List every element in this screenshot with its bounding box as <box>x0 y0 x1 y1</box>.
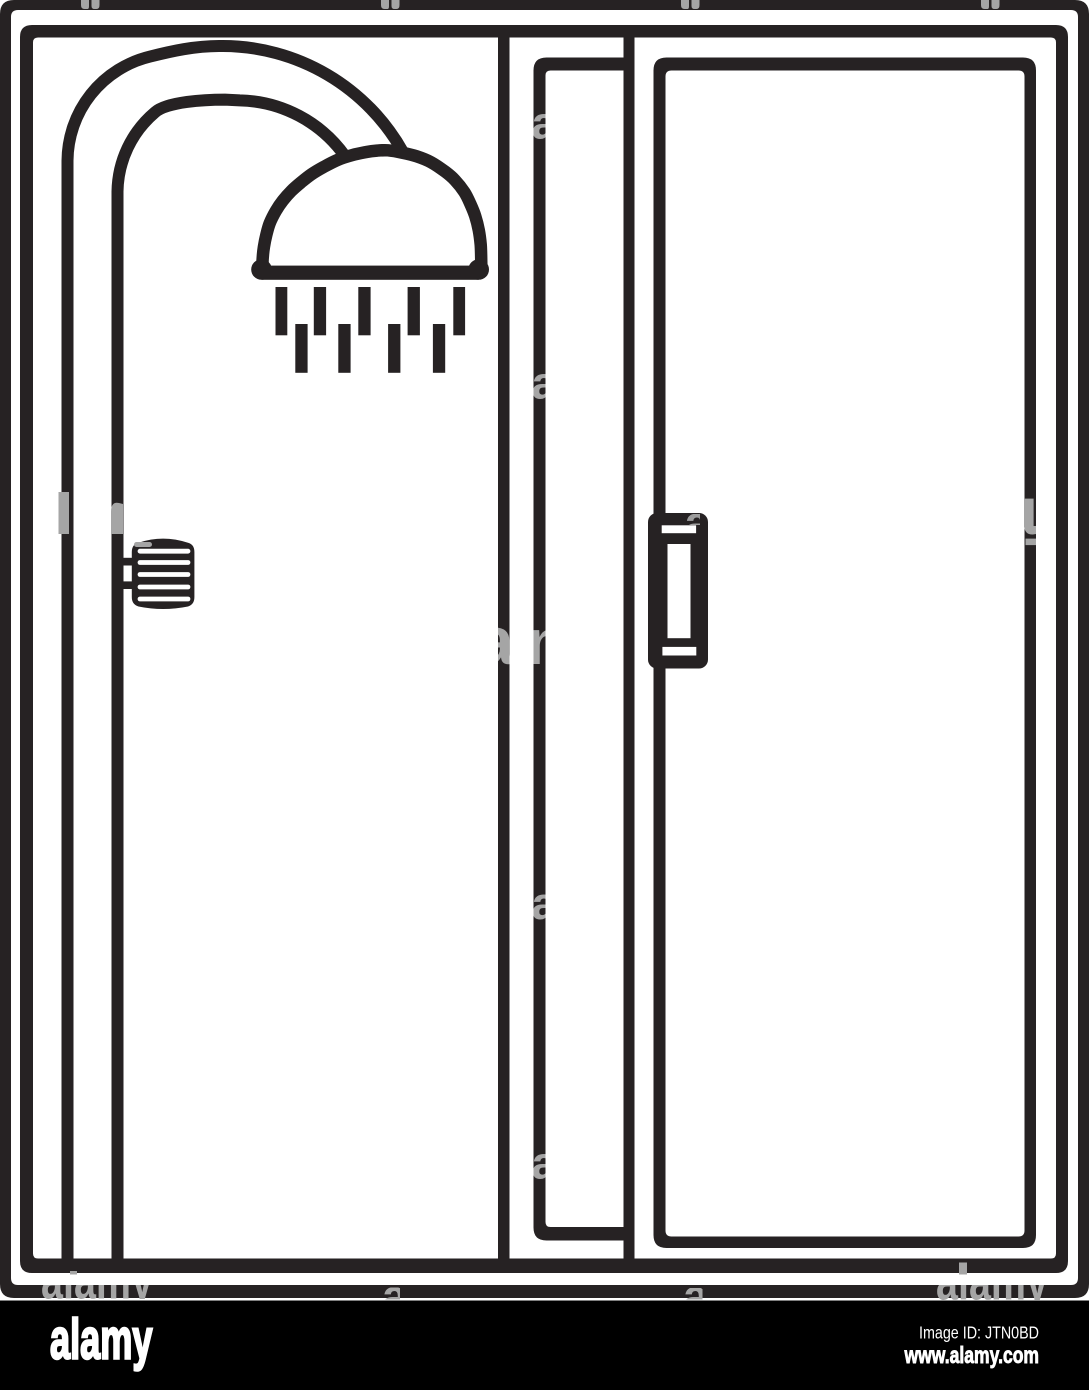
svg-text:Image ID: JTN0BD: Image ID: JTN0BD <box>919 1322 1039 1342</box>
svg-text:alamy: alamy <box>50 1308 153 1372</box>
svg-text:www.alamy.com: www.alamy.com <box>904 1342 1039 1368</box>
